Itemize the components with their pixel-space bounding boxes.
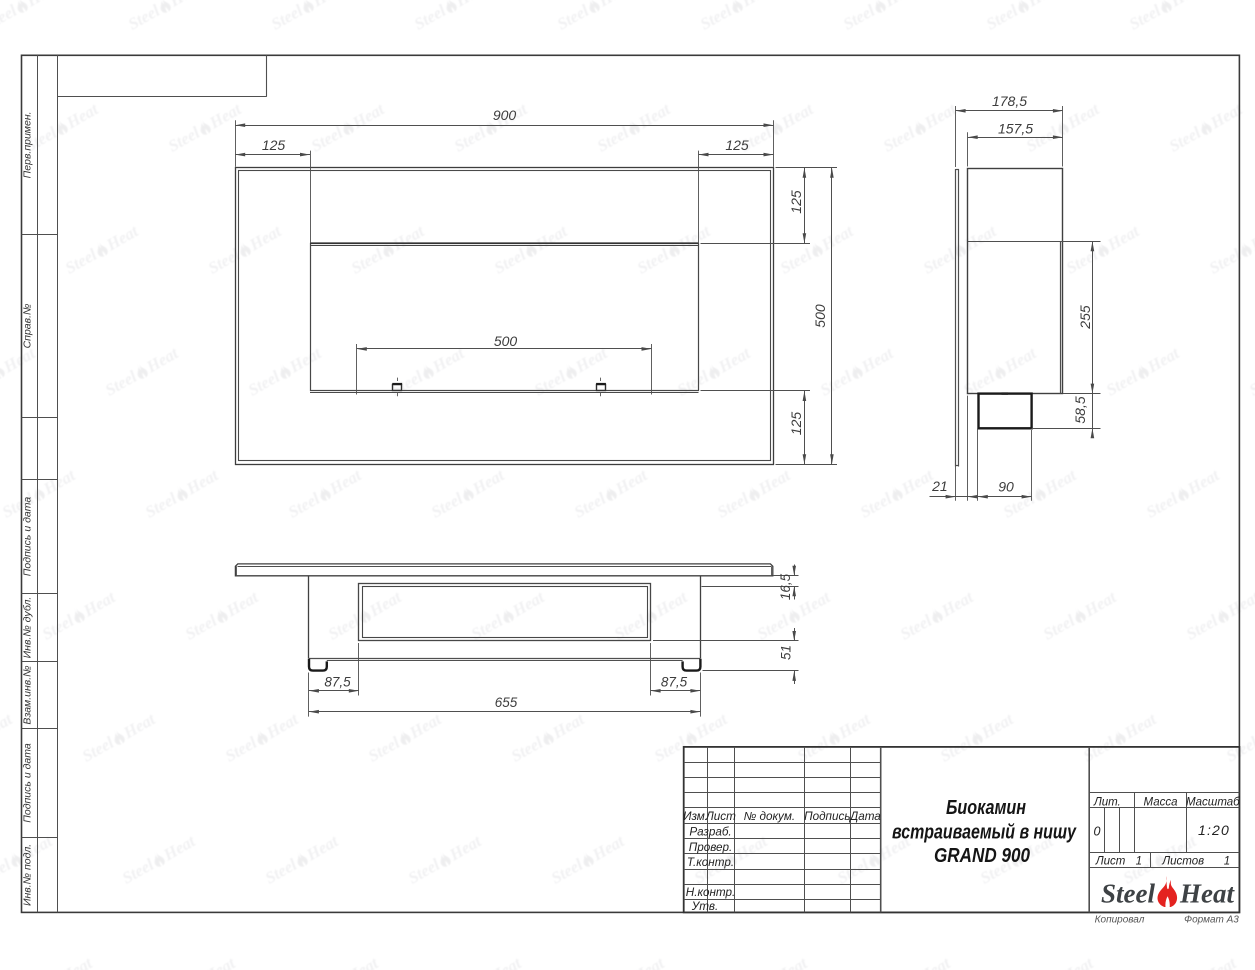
svg-text:125: 125 — [788, 190, 804, 214]
svg-text:Лист: Лист — [705, 810, 736, 823]
svg-text:255: 255 — [1077, 305, 1093, 330]
svg-text:500: 500 — [494, 333, 518, 349]
svg-text:90: 90 — [998, 478, 1014, 494]
svg-text:58,5: 58,5 — [1072, 396, 1088, 423]
svg-text:Н.контр.: Н.контр. — [686, 886, 736, 899]
svg-text:Heat: Heat — [1179, 879, 1235, 909]
svg-text:Копировал: Копировал — [1095, 915, 1145, 926]
svg-text:178,5: 178,5 — [992, 93, 1027, 109]
svg-text:0: 0 — [1094, 825, 1101, 839]
svg-text:Разраб.: Разраб. — [689, 826, 731, 839]
svg-text:125: 125 — [725, 137, 749, 153]
svg-text:Инв.№ подл.: Инв.№ подл. — [22, 844, 34, 906]
svg-text:51: 51 — [778, 645, 793, 660]
svg-text:900: 900 — [493, 107, 517, 123]
svg-text:500: 500 — [812, 304, 828, 328]
svg-text:Перв.примен.: Перв.примен. — [22, 111, 34, 178]
svg-text:655: 655 — [495, 695, 518, 710]
svg-text:Лит.: Лит. — [1093, 796, 1121, 808]
svg-text:Провер.: Провер. — [689, 841, 733, 854]
svg-text:Т.контр.: Т.контр. — [687, 856, 734, 869]
svg-text:125: 125 — [788, 412, 804, 436]
svg-text:Инв.№ дубл.: Инв.№ дубл. — [22, 597, 34, 659]
svg-text:157,5: 157,5 — [998, 121, 1033, 137]
svg-text:Подпись и дата: Подпись и дата — [22, 743, 34, 823]
svg-text:Лист: Лист — [1095, 856, 1126, 868]
svg-text:№ докум.: № докум. — [744, 810, 796, 823]
svg-text:1:20: 1:20 — [1198, 822, 1230, 838]
svg-text:87,5: 87,5 — [661, 674, 688, 689]
svg-text:Масштаб: Масштаб — [1186, 796, 1240, 808]
svg-text:16,5: 16,5 — [778, 573, 793, 600]
svg-text:Справ.№: Справ.№ — [22, 304, 34, 349]
svg-text:GRAND 900: GRAND 900 — [934, 845, 1030, 867]
svg-text:Формат А3: Формат А3 — [1184, 915, 1239, 926]
svg-text:1: 1 — [1224, 856, 1230, 868]
svg-text:21: 21 — [931, 478, 948, 494]
svg-text:Листов: Листов — [1161, 856, 1204, 868]
svg-text:125: 125 — [262, 137, 286, 153]
svg-text:Масса: Масса — [1143, 796, 1177, 808]
svg-text:Биокамин: Биокамин — [946, 797, 1026, 819]
svg-text:Утв.: Утв. — [691, 900, 719, 913]
svg-text:Дата: Дата — [848, 810, 881, 823]
svg-text:Подпись: Подпись — [804, 810, 850, 823]
svg-text:Изм.: Изм. — [683, 810, 708, 823]
svg-text:встраиваемый в нишу: встраиваемый в нишу — [892, 821, 1077, 843]
svg-text:1: 1 — [1136, 856, 1142, 868]
svg-text:Подпись и дата: Подпись и дата — [22, 497, 34, 577]
svg-text:Steel: Steel — [1101, 879, 1155, 909]
svg-text:87,5: 87,5 — [324, 674, 351, 689]
svg-text:Взам.инв.№: Взам.инв.№ — [22, 665, 34, 724]
